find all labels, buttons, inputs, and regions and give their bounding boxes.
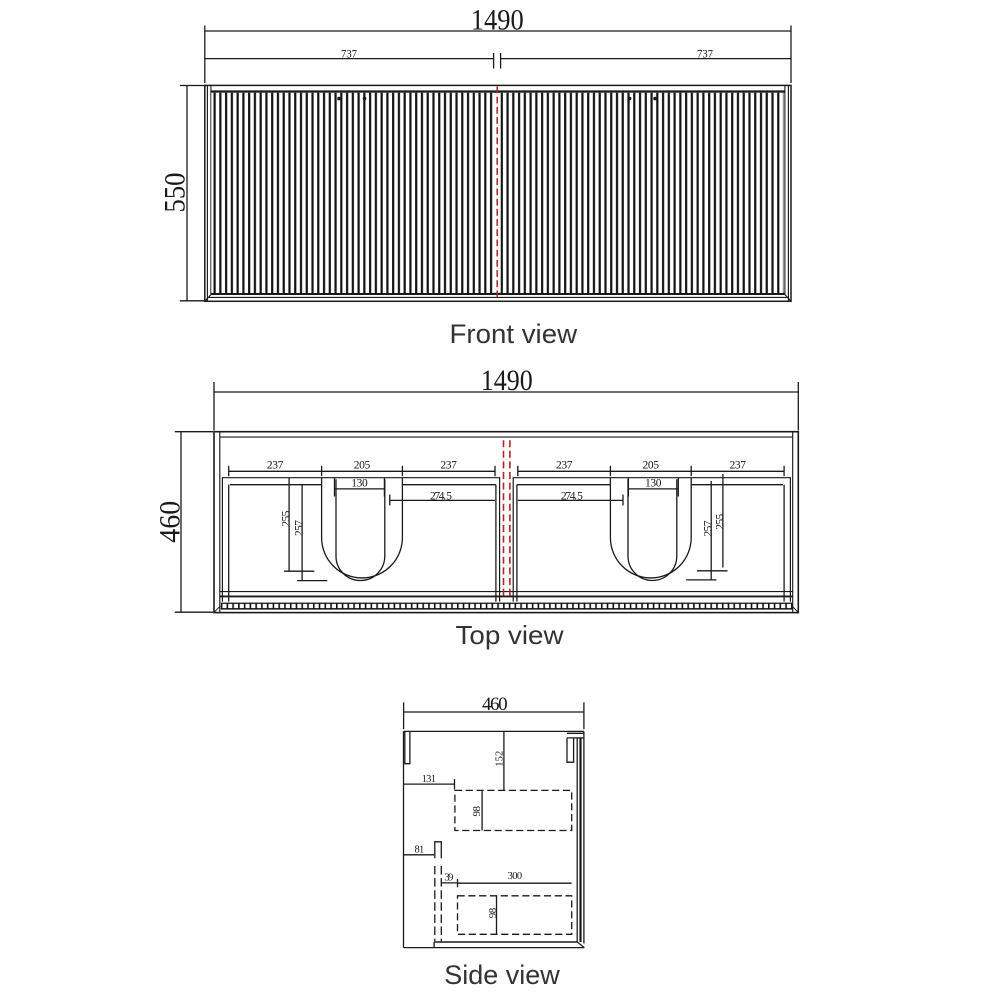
svg-text:257: 257 [703,520,715,536]
svg-text:Side view: Side view [444,960,560,990]
svg-text:274. 5: 274. 5 [430,490,452,502]
svg-text:737: 737 [341,48,357,60]
svg-text:1490: 1490 [481,364,533,397]
svg-text:131: 131 [422,774,436,785]
svg-text:98: 98 [487,907,499,918]
svg-text:274. 5: 274. 5 [561,490,583,502]
svg-text:Front view: Front view [450,319,578,349]
svg-text:237: 237 [729,460,746,472]
svg-text:237: 237 [440,460,457,472]
svg-text:Top view: Top view [456,620,564,650]
svg-text:257: 257 [294,520,306,536]
svg-text:737: 737 [697,48,713,60]
svg-text:39: 39 [444,873,453,884]
svg-text:300: 300 [508,871,523,882]
svg-text:130: 130 [351,478,368,490]
svg-text:205: 205 [643,460,660,472]
svg-text:237: 237 [556,460,573,472]
svg-text:255: 255 [714,513,726,529]
svg-text:152: 152 [495,751,506,767]
svg-text:460: 460 [154,501,187,543]
svg-text:460: 460 [482,694,508,715]
svg-text:550: 550 [159,173,192,213]
svg-text:130: 130 [645,478,662,490]
svg-text:98: 98 [471,805,483,816]
svg-text:237: 237 [267,460,284,472]
svg-text:255: 255 [281,510,293,526]
svg-text:81: 81 [415,845,425,856]
svg-text:205: 205 [354,460,371,472]
svg-text:1490: 1490 [471,3,524,36]
